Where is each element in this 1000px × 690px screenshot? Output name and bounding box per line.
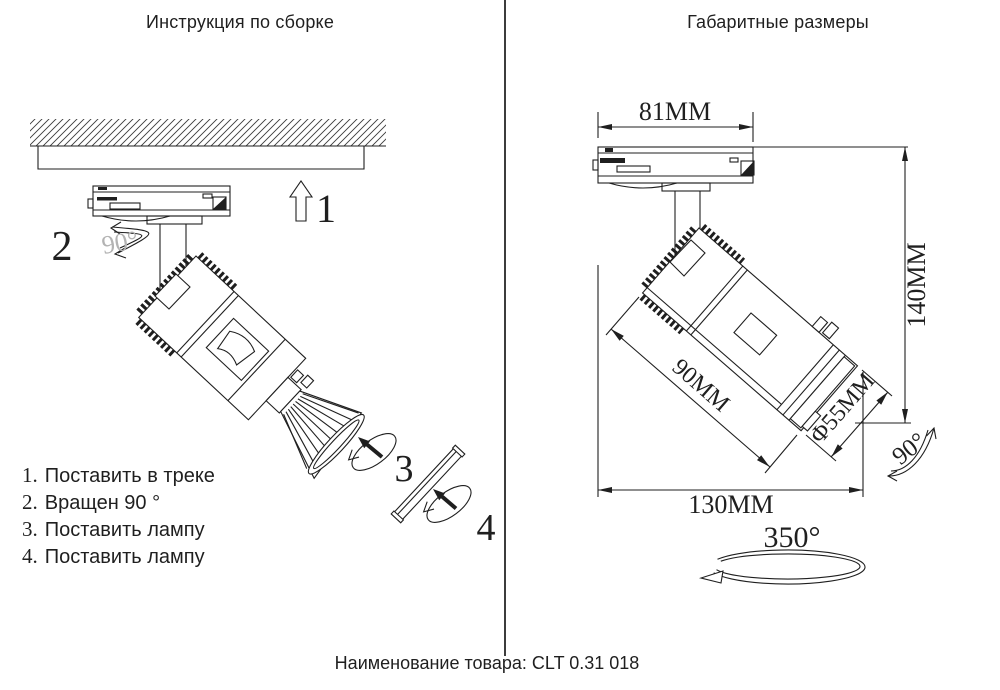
dim-81mm-label: 81MM (639, 97, 711, 126)
step-number: 4. (22, 544, 38, 568)
step2-angle-label: 90° (99, 225, 140, 260)
step3-marker: 3 (395, 448, 414, 490)
dimension-drawing: 81MM (505, 0, 1000, 656)
list-item: 4.Поставить лампу (22, 543, 215, 570)
dim-130mm-label: 130MM (688, 490, 773, 519)
dim-140mm-label: 140MM (902, 242, 931, 327)
step-text: Вращен 90 ° (45, 492, 160, 514)
step-number: 1. (22, 463, 38, 487)
list-item: 1.Поставить в треке (22, 462, 215, 489)
tilt-angle-label: 90° (887, 428, 931, 471)
list-item: 3.Поставить лампу (22, 516, 215, 543)
track-adapter (88, 186, 230, 224)
ceiling-track-profile (38, 146, 364, 169)
track-adapter (593, 147, 754, 191)
step-text: Поставить в треке (45, 465, 215, 487)
dim-81mm: 81MM (598, 97, 753, 142)
instruction-sheet: Инструкция по сборке Габаритные размеры (0, 0, 1000, 690)
step-text: Поставить лампу (45, 546, 205, 568)
lamp-knob (301, 375, 314, 388)
insert-up-arrow-icon (290, 181, 312, 221)
assembly-steps-list: 1.Поставить в треке 2.Вращен 90 ° 3.Пост… (22, 462, 215, 570)
list-item: 2.Вращен 90 ° (22, 489, 215, 516)
ceiling-hatch (30, 119, 386, 146)
step2-marker: 2 (52, 224, 73, 270)
step-number: 3. (22, 517, 38, 541)
angle-350-arrow-icon (701, 550, 865, 584)
rotation-angle-label: 350° (764, 521, 821, 554)
product-name-caption: Наименование товара: CLT 0.31 018 (335, 653, 640, 674)
step-number: 2. (22, 490, 38, 514)
step-text: Поставить лампу (45, 519, 205, 541)
step1-marker: 1 (316, 186, 336, 231)
step4-marker: 4 (477, 507, 496, 549)
